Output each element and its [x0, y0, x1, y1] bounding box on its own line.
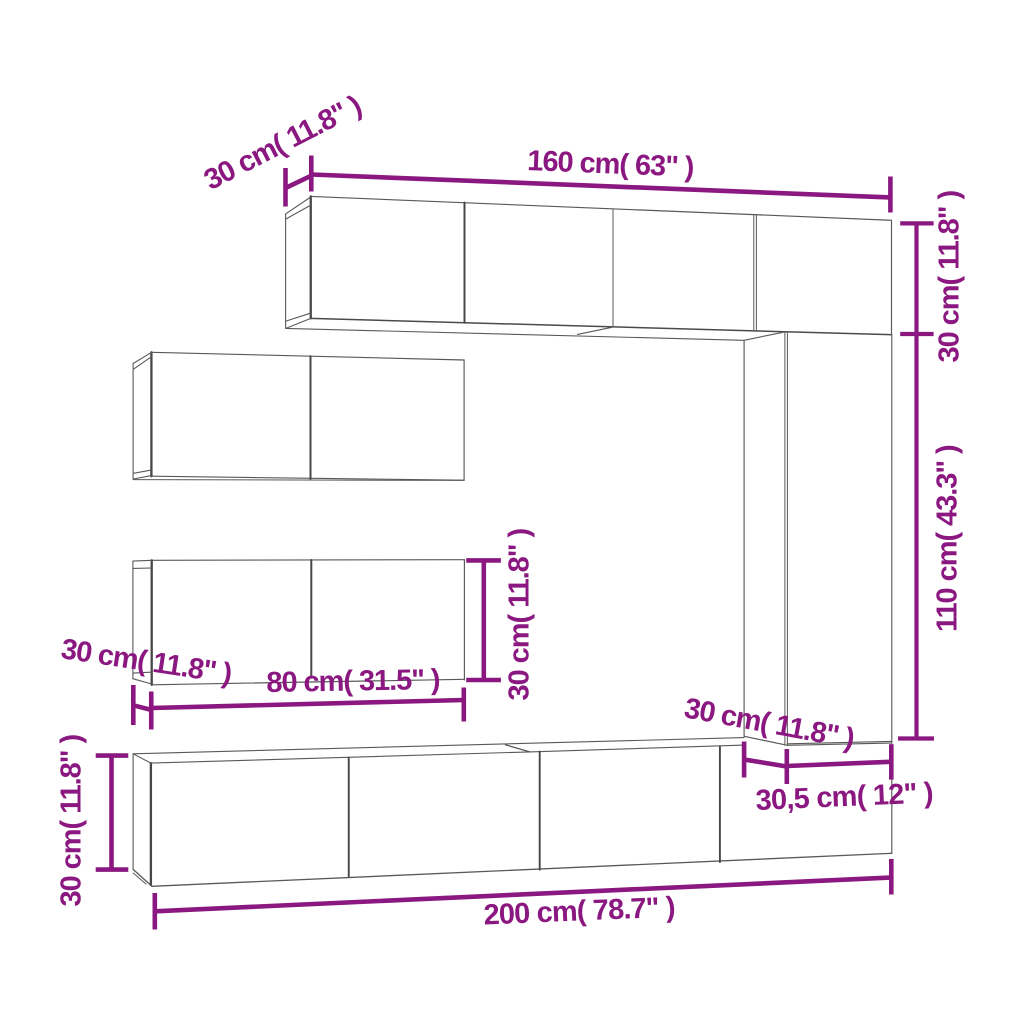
svg-text:80 cm( 31.5" ): 80 cm( 31.5" )	[266, 664, 440, 699]
svg-text:30 cm( 11.8" ): 30 cm( 11.8" )	[59, 633, 234, 690]
svg-text:30 cm( 11.8" ): 30 cm( 11.8" )	[504, 529, 536, 701]
svg-text:30 cm( 11.8" ): 30 cm( 11.8" )	[934, 191, 966, 363]
svg-text:30 cm( 11.8" ): 30 cm( 11.8" )	[199, 90, 367, 197]
svg-text:30 cm( 11.8" ): 30 cm( 11.8" )	[56, 735, 88, 907]
svg-text:160 cm( 63" ): 160 cm( 63" )	[527, 145, 695, 184]
svg-text:110 cm( 43.3" ): 110 cm( 43.3" )	[932, 445, 964, 632]
svg-text:200 cm( 78.7" ): 200 cm( 78.7" )	[483, 892, 676, 932]
svg-text:30,5 cm( 12" ): 30,5 cm( 12" )	[755, 777, 934, 817]
